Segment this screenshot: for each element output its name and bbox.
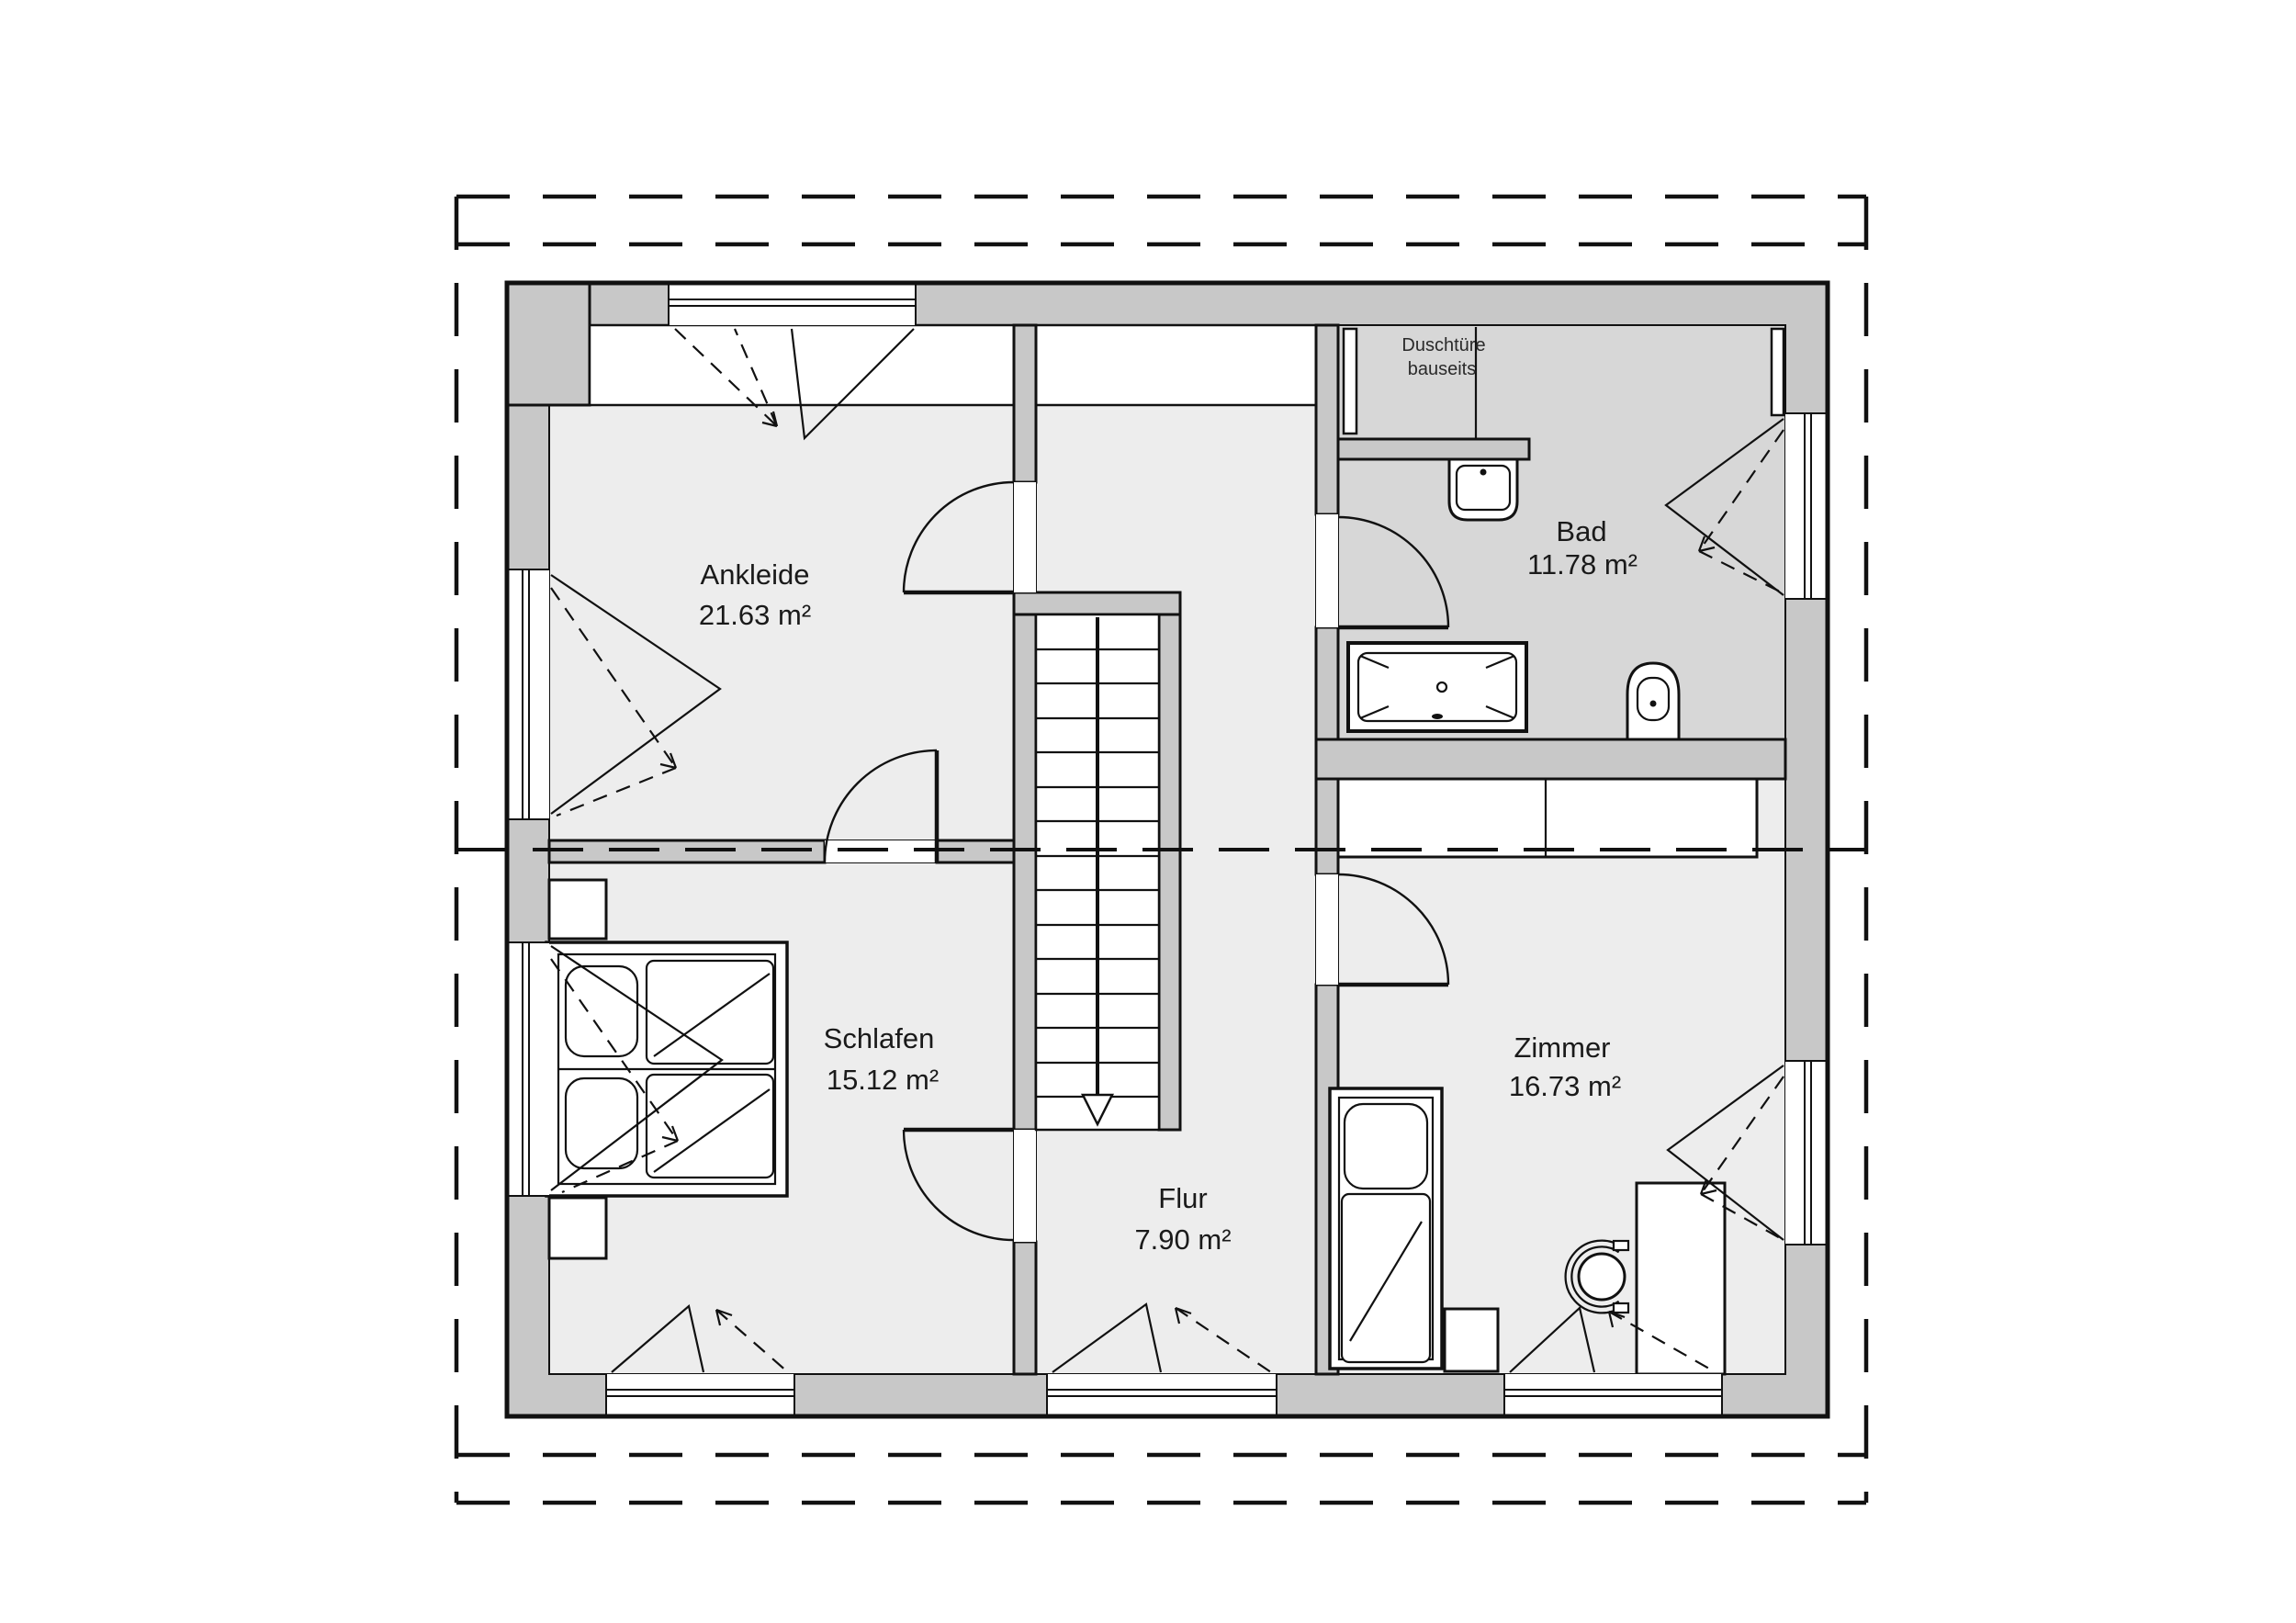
label-shower-note-line1: Duschtüre xyxy=(1401,335,1485,355)
single-bed xyxy=(1330,1088,1442,1369)
wall-stair-top xyxy=(1014,592,1180,614)
wall-bad-zimmer xyxy=(1316,739,1785,779)
wall-stair-left xyxy=(1014,614,1036,1130)
window-flur-bottom xyxy=(1047,1374,1277,1416)
label-flur-name: Flur xyxy=(1158,1182,1207,1214)
pillow xyxy=(566,1078,637,1168)
label-flur-area: 7.90 m² xyxy=(1134,1223,1231,1256)
window-schlafen-bottom xyxy=(606,1374,794,1416)
vanity-halfwall xyxy=(1338,439,1529,459)
pillow xyxy=(1345,1104,1427,1189)
window-ankleide-top xyxy=(669,283,916,325)
floor-plan-drawing: Ankleide 21.63 m² Bad 11.78 m² Schlafen … xyxy=(0,0,2296,1623)
staircase xyxy=(1036,614,1159,1130)
wall-ankleide-flur-stub xyxy=(1014,325,1036,482)
door-opening-zimmer xyxy=(1316,874,1338,985)
window-ankleide-left xyxy=(507,569,549,819)
bathtub-overflow xyxy=(1432,714,1443,719)
window-zimmer-right xyxy=(1785,1061,1828,1245)
washbasin xyxy=(1449,459,1517,520)
label-bad-name: Bad xyxy=(1556,515,1606,547)
floor-plan-page: Ankleide 21.63 m² Bad 11.78 m² Schlafen … xyxy=(0,0,2296,1623)
radiator xyxy=(1772,329,1784,415)
wall-bad-left-lower xyxy=(1316,627,1338,739)
label-shower-note-line2: bauseits xyxy=(1408,359,1477,379)
sill-band-flur xyxy=(1036,325,1316,405)
wall-bad-left-upper xyxy=(1316,325,1338,514)
duvet xyxy=(647,1075,773,1178)
wardrobe xyxy=(1338,779,1757,857)
nightstand xyxy=(1445,1309,1498,1371)
window-zimmer-bottom xyxy=(1504,1374,1722,1416)
wall-corner-block xyxy=(507,283,590,405)
wall-stair-right xyxy=(1159,614,1180,1130)
wall-flur-schlafen-lower xyxy=(1014,1242,1036,1374)
label-zimmer-name: Zimmer xyxy=(1514,1031,1610,1064)
bathtub xyxy=(1348,643,1526,731)
nightstand xyxy=(549,1198,606,1258)
wall-flur-zimmer-upper xyxy=(1316,779,1338,874)
washbasin-tap xyxy=(1480,469,1487,476)
label-ankleide-area: 21.63 m² xyxy=(699,599,811,631)
label-ankleide-name: Ankleide xyxy=(701,558,810,591)
label-schlafen-area: 15.12 m² xyxy=(827,1064,939,1096)
toilet xyxy=(1627,663,1679,739)
window-schlafen-left xyxy=(507,942,549,1196)
label-schlafen-name: Schlafen xyxy=(824,1022,935,1054)
nightstand xyxy=(549,880,606,939)
window-bad-right xyxy=(1785,413,1828,599)
bathtub-drain xyxy=(1437,682,1446,692)
desk xyxy=(1637,1183,1725,1374)
door-opening-ankleide xyxy=(1014,482,1036,592)
sill-band-ankleide xyxy=(590,325,1014,405)
door-opening-bad xyxy=(1316,514,1338,627)
door-opening-schlafen xyxy=(1014,1130,1036,1242)
label-bad-area: 11.78 m² xyxy=(1527,548,1638,580)
shower-glass-door xyxy=(1344,329,1356,434)
duvet xyxy=(1342,1194,1430,1362)
double-bed xyxy=(546,942,787,1196)
label-zimmer-area: 16.73 m² xyxy=(1509,1070,1621,1102)
